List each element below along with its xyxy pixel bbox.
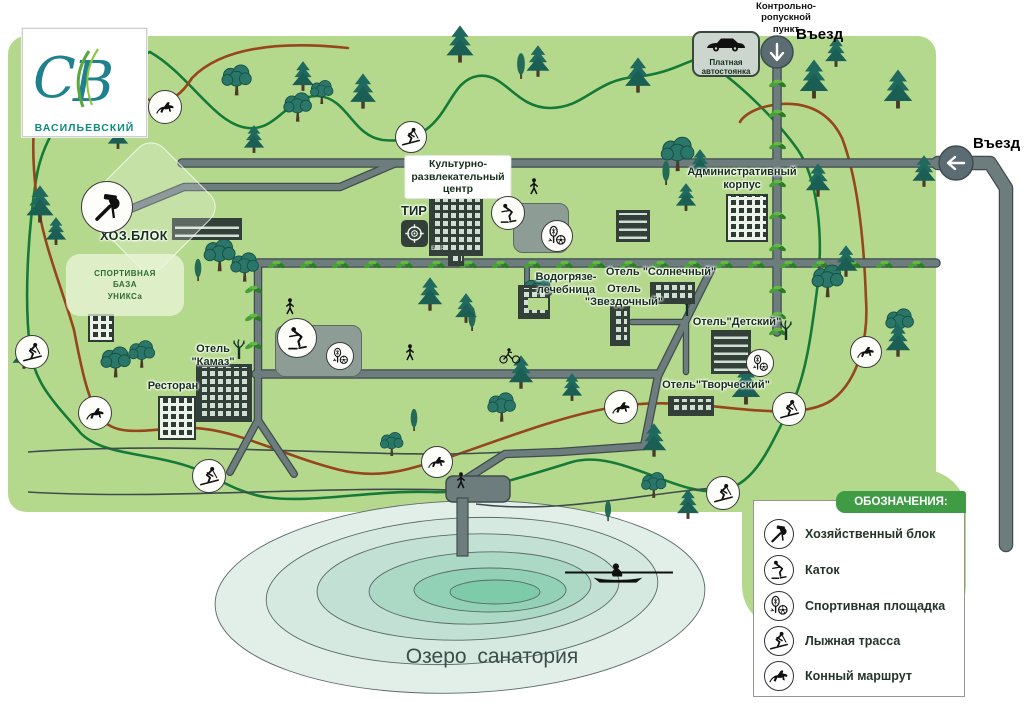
tools-icon (81, 181, 133, 233)
legend-item-label: Хозяйственный блок (805, 527, 935, 541)
label-hotel-sunny: Отель "Солнечный" (606, 266, 716, 279)
label-entrance-top: Въезд (796, 26, 843, 44)
label-hotel-star: Отель "Звездочный" (585, 283, 663, 309)
building-hotel-creative (668, 396, 714, 416)
building-admin (726, 194, 768, 242)
label-hotel-creative: Отель"Творческий" (662, 379, 770, 392)
building-parking-structure (616, 210, 650, 242)
horse-icon (764, 661, 794, 691)
legend-item-label: Лыжная трасса (805, 634, 900, 648)
building-hotel-kids (711, 330, 751, 374)
label-cultural-center: Культурно- развлекательный центр (405, 156, 510, 198)
label-sport-base: СПОРТИВНАЯ БАЗА УНИКСа (66, 254, 184, 316)
sport-icon (764, 591, 794, 621)
building-sport-base (88, 314, 114, 342)
label-restaurant: Ресторан (148, 380, 199, 393)
skate-icon (277, 318, 317, 358)
resort-map: Культурно- развлекательный центр БАР ТИР… (0, 0, 1024, 705)
ski-icon (764, 626, 794, 656)
label-entrance-right: Въезд (973, 135, 1020, 153)
logo-name: ВАСИЛЬЕВСКИЙ (23, 122, 146, 134)
sport-icon (746, 349, 774, 377)
spa-courtyard (528, 298, 548, 310)
building-hotel-star (610, 306, 630, 346)
svg-text:С: С (33, 46, 76, 111)
sport-icon (541, 220, 573, 252)
label-hotel-kids: Отель"Детский" (693, 316, 782, 329)
ski-icon (395, 121, 427, 153)
label-lake: Озеро санатория (406, 644, 578, 669)
horse-icon (148, 90, 182, 124)
logo: С В ВАСИЛЬЕВСКИЙ (22, 28, 147, 137)
shooting-range-icon (401, 220, 428, 247)
legend-panel: Хозяйственный блок Каток Спортивная площ… (753, 500, 965, 697)
label-bar: БАР (431, 245, 444, 253)
tools-icon (764, 519, 794, 549)
legend-item-label: Спортивная площадка (805, 599, 945, 613)
building-cultural-center-annex (448, 252, 464, 266)
ski-icon (706, 476, 740, 510)
skate-icon (491, 196, 525, 230)
horse-icon (604, 390, 638, 424)
horse-icon (850, 336, 882, 368)
ski-icon (15, 335, 49, 369)
building-restaurant (158, 396, 196, 440)
legend-item-label: Конный маршрут (805, 669, 912, 683)
entrance-top-icon (761, 36, 793, 68)
label-admin: Административный корпус (687, 166, 796, 192)
paid-parking-label: Платная автостоянка (694, 58, 758, 76)
ski-icon (772, 392, 806, 426)
car-icon (705, 35, 747, 53)
horse-icon (421, 446, 453, 478)
legend-item-label: Каток (805, 563, 840, 577)
legend-title: ОБОЗНАЧЕНИЯ: (836, 491, 966, 513)
label-tir: ТИР (401, 203, 427, 219)
horse-icon (78, 396, 112, 430)
label-hotel-kamaz: Отель "Камаз" (191, 343, 234, 369)
ski-icon (192, 459, 226, 493)
building-hotel-kamaz (196, 364, 252, 422)
logo-monogram-icon: С В (31, 45, 141, 115)
entrance-right-icon (939, 146, 973, 180)
skate-icon (764, 555, 794, 585)
paid-parking-sign: Платная автостоянка (692, 31, 760, 77)
sport-icon (326, 342, 354, 370)
